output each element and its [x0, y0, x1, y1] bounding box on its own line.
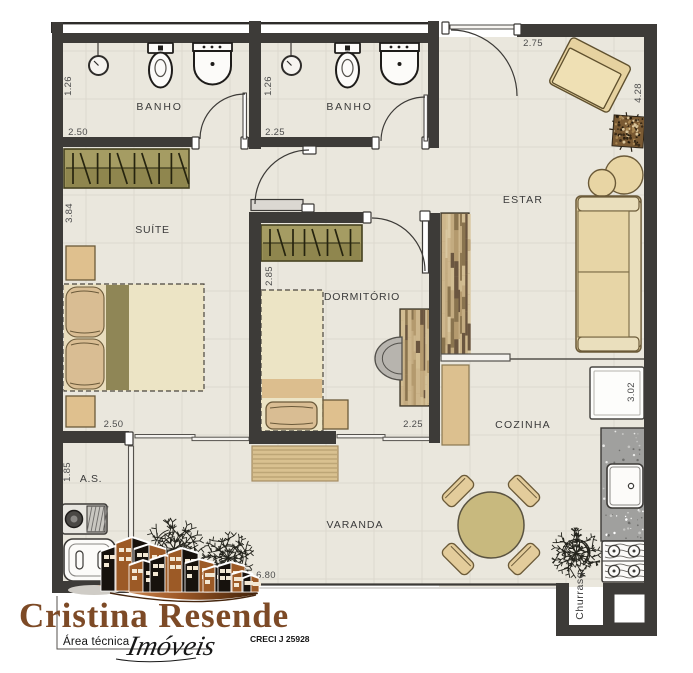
svg-text:CRECI J 25928: CRECI J 25928 — [250, 634, 310, 644]
svg-text:ESTAR: ESTAR — [503, 194, 543, 206]
svg-text:3.84: 3.84 — [64, 203, 75, 223]
svg-text:4.28: 4.28 — [633, 83, 644, 103]
svg-text:1.85: 1.85 — [62, 462, 73, 482]
svg-text:2.85: 2.85 — [264, 266, 275, 286]
svg-text:VARANDA: VARANDA — [327, 519, 384, 531]
svg-text:Área técnica: Área técnica — [63, 635, 130, 648]
svg-text:2.50: 2.50 — [104, 419, 124, 430]
svg-text:Cristina Resende: Cristina Resende — [19, 596, 289, 635]
svg-text:BANHO: BANHO — [326, 101, 372, 113]
svg-text:Imóveis: Imóveis — [124, 631, 219, 662]
svg-text:BANHO: BANHO — [136, 101, 182, 113]
svg-text:2.50: 2.50 — [68, 127, 88, 138]
svg-text:A.S.: A.S. — [80, 473, 102, 485]
svg-text:2.75: 2.75 — [523, 38, 543, 49]
svg-text:1.26: 1.26 — [263, 76, 274, 96]
svg-text:2.25: 2.25 — [265, 127, 285, 138]
svg-text:2.25: 2.25 — [403, 419, 423, 430]
svg-text:COZINHA: COZINHA — [495, 419, 551, 431]
svg-text:1.26: 1.26 — [63, 76, 74, 96]
svg-text:Churrasq.: Churrasq. — [574, 568, 586, 620]
svg-text:DORMITÓRIO: DORMITÓRIO — [324, 290, 400, 303]
svg-text:3.02: 3.02 — [626, 382, 637, 402]
svg-text:SUÍTE: SUÍTE — [135, 223, 169, 236]
